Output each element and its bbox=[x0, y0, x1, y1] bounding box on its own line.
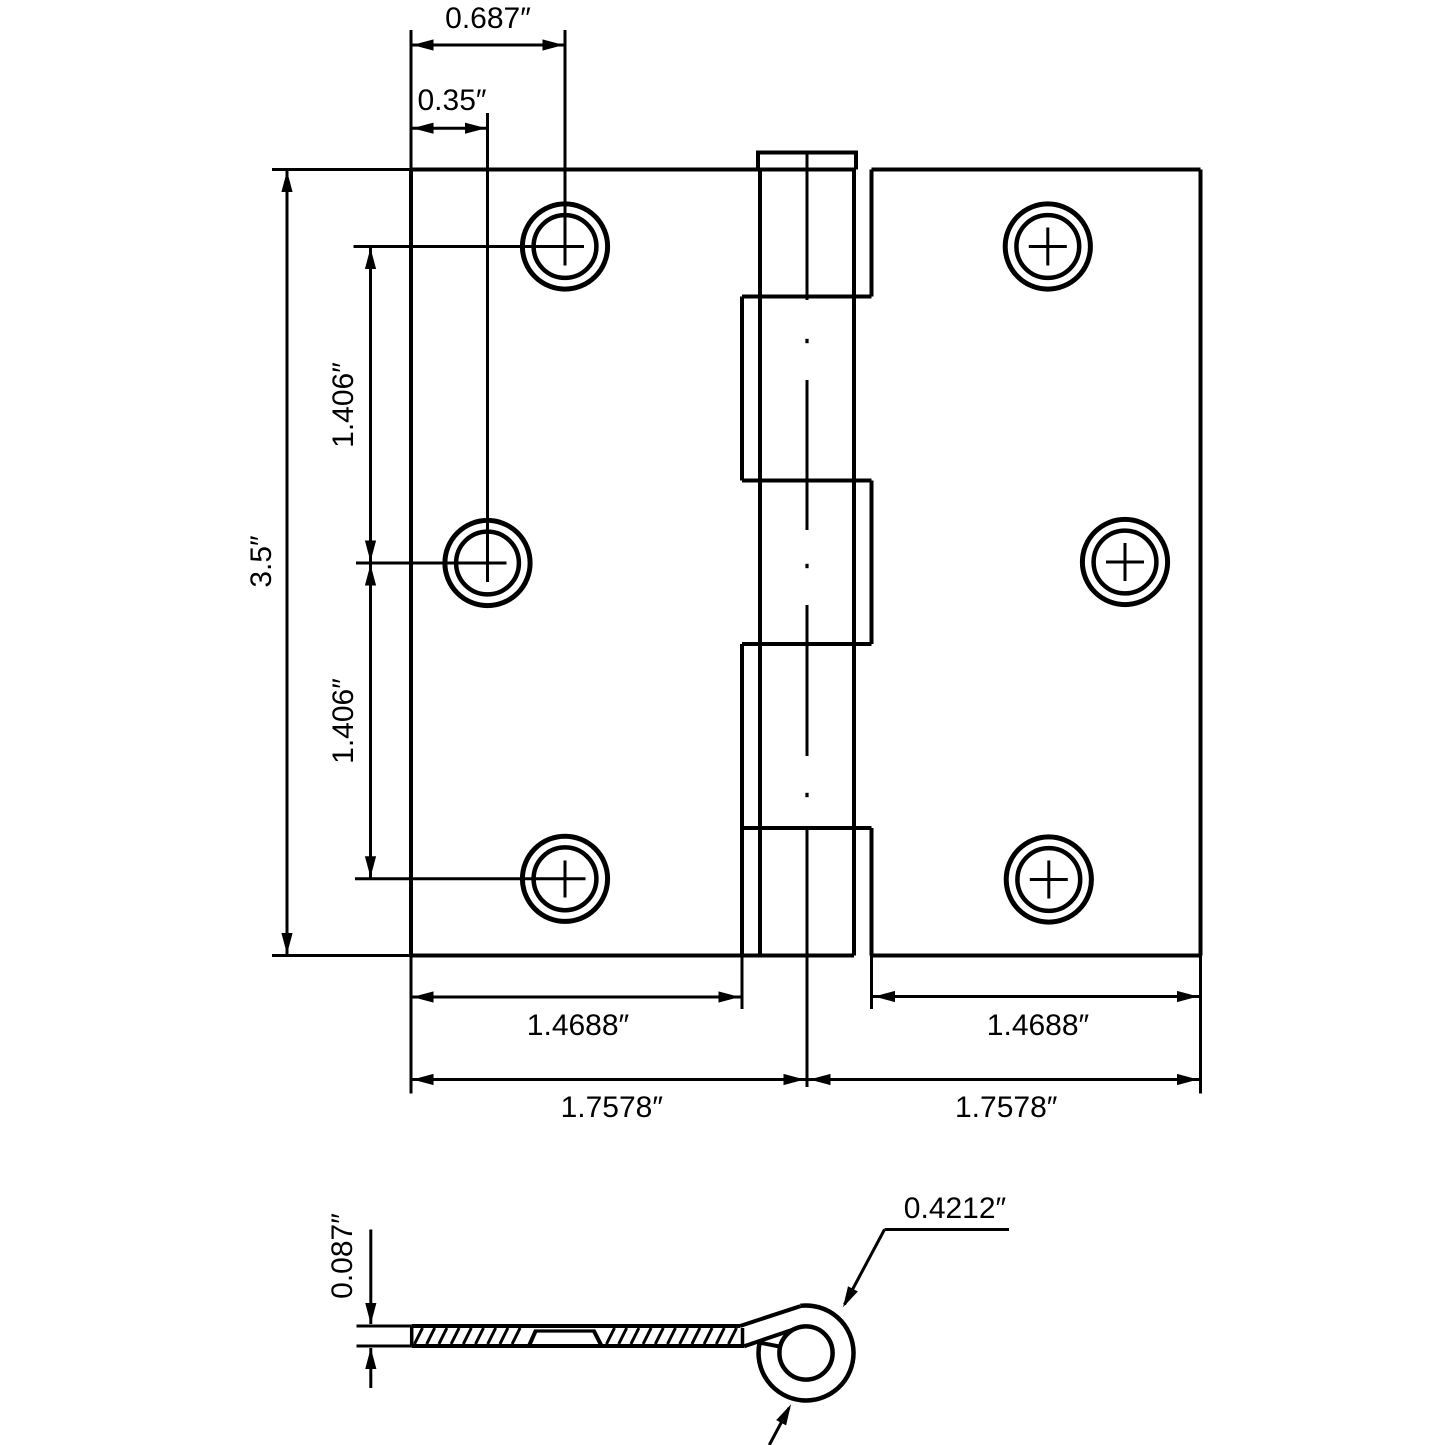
svg-text:0.4212″: 0.4212″ bbox=[904, 1192, 1007, 1225]
svg-text:1.406″: 1.406″ bbox=[327, 678, 360, 764]
svg-text:1.4688″: 1.4688″ bbox=[987, 1009, 1090, 1042]
svg-text:1.4688″: 1.4688″ bbox=[527, 1009, 630, 1042]
svg-text:1.406″: 1.406″ bbox=[327, 362, 360, 448]
svg-text:1.7578″: 1.7578″ bbox=[955, 1091, 1058, 1124]
svg-text:0.687″: 0.687″ bbox=[445, 2, 531, 35]
svg-text:0.35″: 0.35″ bbox=[417, 84, 486, 117]
svg-text:3.5″: 3.5″ bbox=[245, 535, 278, 588]
svg-text:0.087″: 0.087″ bbox=[326, 1213, 359, 1299]
svg-text:1.7578″: 1.7578″ bbox=[561, 1091, 664, 1124]
